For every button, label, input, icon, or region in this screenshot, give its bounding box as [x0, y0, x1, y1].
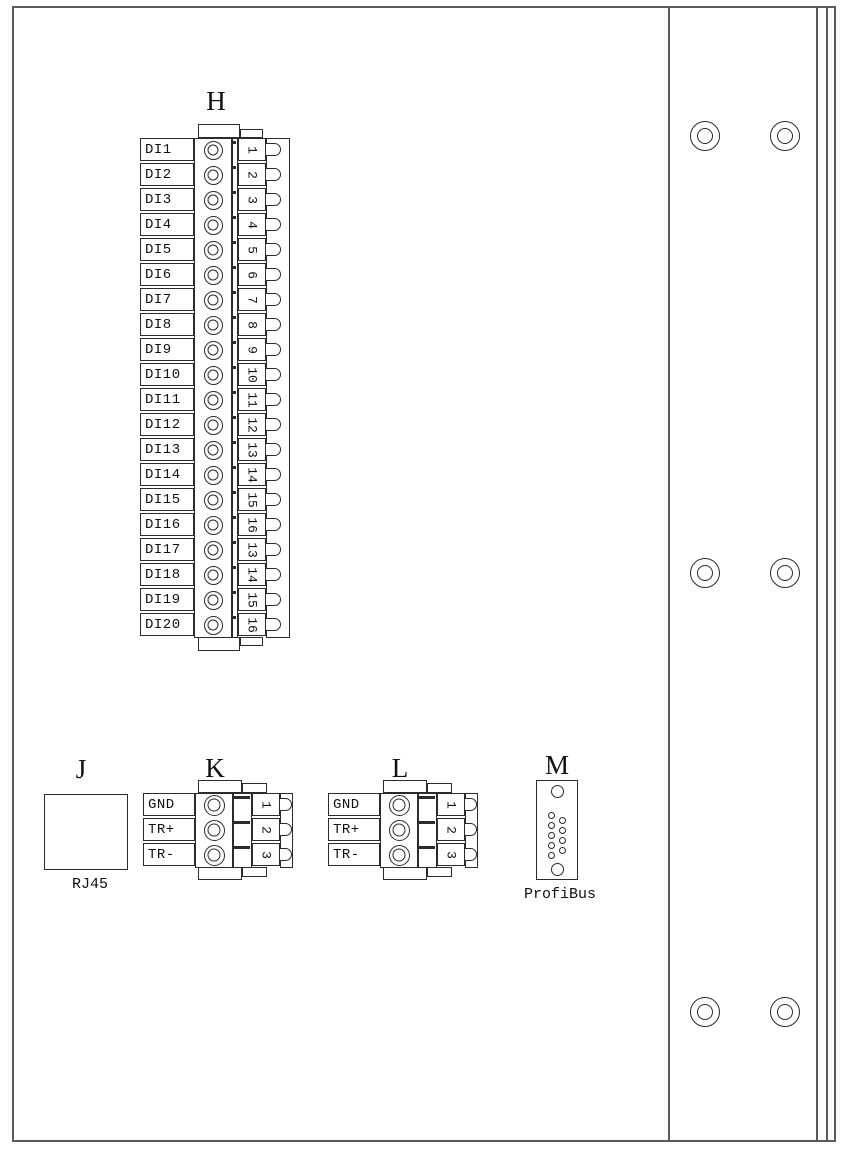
- panel-divider-line: [668, 7, 670, 1141]
- terminal-label: DI3: [141, 192, 172, 208]
- rail-tick: [233, 491, 236, 494]
- terminal-label-cell: DI4: [140, 213, 194, 236]
- terminal-label: DI2: [141, 167, 172, 183]
- terminal-label-cell: DI18: [140, 563, 194, 586]
- rj45-connector: [44, 794, 128, 870]
- pin-number-cell: 14: [238, 563, 266, 586]
- rail-tick: [233, 416, 236, 419]
- terminal-label-cell: DI16: [140, 513, 194, 536]
- screw-terminal-inner-icon: [208, 320, 219, 331]
- pin-number-cell: 5: [238, 238, 266, 261]
- terminal-label: TR-: [144, 847, 175, 863]
- wire-clip-tab: [279, 848, 292, 861]
- pin-number-cell: 2: [238, 163, 266, 186]
- db9-pin-icon: [548, 852, 555, 859]
- pin-number: 9: [245, 346, 260, 354]
- terminal-strip-rail: [233, 793, 252, 868]
- screw-terminal-inner-icon: [208, 495, 219, 506]
- terminal-label: DI19: [141, 592, 181, 608]
- pin-number-cell: 10: [238, 363, 266, 386]
- pin-number: 3: [444, 851, 459, 859]
- rail-tick: [419, 821, 435, 824]
- pin-number-cell: 9: [238, 338, 266, 361]
- rail-tick: [233, 566, 236, 569]
- terminal-label: DI1: [141, 142, 172, 158]
- terminal-label-cell: DI13: [140, 438, 194, 461]
- pin-number-cell: 7: [238, 288, 266, 311]
- pin-number: 2: [444, 826, 459, 834]
- db9-pin-icon: [548, 842, 555, 849]
- screw-terminal-inner-icon: [393, 799, 406, 812]
- screw-terminal-inner-icon: [208, 395, 219, 406]
- screw-terminal-icon: [204, 491, 223, 510]
- wire-clip-tab: [265, 243, 281, 256]
- pin-number: 14: [245, 467, 260, 483]
- pin-number: 15: [245, 492, 260, 508]
- wire-clip-tab: [265, 218, 281, 231]
- pin-number: 6: [245, 271, 260, 279]
- rail-tick: [234, 821, 250, 824]
- pin-number-cell: 3: [252, 843, 280, 866]
- rail-tick: [233, 166, 236, 169]
- pin-number: 12: [245, 417, 260, 433]
- pin-number: 2: [259, 826, 274, 834]
- wire-clip-tab: [265, 468, 281, 481]
- pin-number-cell: 11: [238, 388, 266, 411]
- pin-number-cell: 3: [437, 843, 465, 866]
- screw-terminal-inner-icon: [208, 620, 219, 631]
- db9-pin-icon: [559, 817, 566, 824]
- db9-pin-icon: [548, 832, 555, 839]
- db9-pin-icon: [559, 827, 566, 834]
- wire-clip-tab: [265, 168, 281, 181]
- screw-terminal-inner-icon: [208, 370, 219, 381]
- wire-clip-tab: [464, 823, 477, 836]
- wire-clip-tab: [265, 568, 281, 581]
- screw-terminal-icon: [204, 366, 223, 385]
- pin-number: 3: [245, 196, 260, 204]
- pin-number-cell: 2: [437, 818, 465, 841]
- rail-tick: [233, 616, 236, 619]
- terminal-label-cell: DI6: [140, 263, 194, 286]
- mounting-flange-tab: [383, 780, 427, 793]
- rail-tick: [233, 316, 236, 319]
- mount-hole-inner-icon: [777, 565, 793, 581]
- terminal-label-cell: DI15: [140, 488, 194, 511]
- screw-terminal-icon: [204, 166, 223, 185]
- panel-edge-line-1: [816, 7, 818, 1141]
- pin-number: 13: [245, 542, 260, 558]
- mounting-flange-tab: [242, 867, 267, 877]
- terminal-label-cell: TR-: [143, 843, 195, 866]
- profibus-screw-hole-icon: [551, 863, 564, 876]
- screw-terminal-inner-icon: [208, 170, 219, 181]
- rail-tick: [233, 341, 236, 344]
- screw-terminal-icon: [204, 820, 225, 841]
- mount-hole-inner-icon: [697, 565, 713, 581]
- terminal-label-cell: DI14: [140, 463, 194, 486]
- terminal-label: GND: [329, 797, 360, 813]
- pin-number: 16: [245, 617, 260, 633]
- pin-number-cell: 16: [238, 513, 266, 536]
- connector-letter-h: H: [200, 88, 232, 115]
- terminal-label: DI15: [141, 492, 181, 508]
- wire-clip-tab: [464, 798, 477, 811]
- screw-terminal-inner-icon: [208, 345, 219, 356]
- wire-clip-tab: [265, 318, 281, 331]
- mounting-flange-tab: [242, 783, 267, 793]
- pin-number: 16: [245, 517, 260, 533]
- terminal-label-cell: TR-: [328, 843, 380, 866]
- screw-terminal-icon: [204, 566, 223, 585]
- terminal-label: GND: [144, 797, 175, 813]
- terminal-label: DI5: [141, 242, 172, 258]
- wire-clip-tab: [265, 618, 281, 631]
- screw-terminal-inner-icon: [208, 595, 219, 606]
- screw-terminal-inner-icon: [208, 145, 219, 156]
- pin-number-cell: 14: [238, 463, 266, 486]
- terminal-label: TR-: [329, 847, 360, 863]
- wire-clip-tab: [279, 798, 292, 811]
- rail-tick: [233, 391, 236, 394]
- rail-tick: [233, 291, 236, 294]
- rail-tick: [233, 266, 236, 269]
- rail-tick: [233, 591, 236, 594]
- wire-clip-tab: [265, 418, 281, 431]
- pin-number: 1: [259, 801, 274, 809]
- connector-letter-k: K: [199, 755, 231, 782]
- screw-terminal-inner-icon: [208, 270, 219, 281]
- pin-number: 15: [245, 592, 260, 608]
- pin-number-cell: 12: [238, 413, 266, 436]
- wiring-diagram-canvas: H J K L M RJ45 ProfiBus DI11DI22DI33DI44…: [0, 0, 848, 1152]
- screw-terminal-icon: [204, 516, 223, 535]
- panel-edge-line-2: [826, 7, 828, 1141]
- mounting-flange-tab: [198, 780, 242, 793]
- mount-hole-inner-icon: [777, 128, 793, 144]
- pin-number-cell: 6: [238, 263, 266, 286]
- mounting-flange-tab: [240, 129, 263, 138]
- terminal-label: DI16: [141, 517, 181, 533]
- mount-hole-inner-icon: [697, 128, 713, 144]
- terminal-label-cell: DI2: [140, 163, 194, 186]
- terminal-strip-rail: [418, 793, 437, 868]
- terminal-label: DI8: [141, 317, 172, 333]
- terminal-label: TR+: [144, 822, 175, 838]
- screw-terminal-icon: [204, 316, 223, 335]
- mount-hole-icon: [770, 997, 800, 1027]
- pin-number-cell: 15: [238, 488, 266, 511]
- mount-hole-icon: [690, 997, 720, 1027]
- terminal-label-cell: DI19: [140, 588, 194, 611]
- connector-letter-j: J: [65, 756, 97, 783]
- connector-letter-m: M: [541, 752, 573, 779]
- screw-terminal-icon: [389, 795, 410, 816]
- screw-terminal-icon: [204, 141, 223, 160]
- mount-hole-icon: [690, 558, 720, 588]
- mounting-flange-tab: [427, 783, 452, 793]
- screw-terminal-column: [194, 138, 232, 638]
- terminal-label: DI12: [141, 417, 181, 433]
- wire-clip-tab: [265, 343, 281, 356]
- terminal-label: DI4: [141, 217, 172, 233]
- db9-pin-icon: [548, 812, 555, 819]
- pin-number-cell: 3: [238, 188, 266, 211]
- wire-clip-tab: [464, 848, 477, 861]
- mounting-flange-tab: [198, 867, 242, 880]
- connector-letter-l: L: [384, 755, 416, 782]
- rail-tick: [234, 796, 250, 799]
- screw-terminal-inner-icon: [208, 520, 219, 531]
- pin-number-cell: 8: [238, 313, 266, 336]
- terminal-label-cell: DI11: [140, 388, 194, 411]
- rail-tick: [233, 191, 236, 194]
- screw-terminal-inner-icon: [208, 420, 219, 431]
- terminal-label-cell: DI10: [140, 363, 194, 386]
- wire-clip-column: [266, 138, 290, 638]
- rail-tick: [233, 541, 236, 544]
- wire-clip-tab: [265, 368, 281, 381]
- pin-number-cell: 16: [238, 613, 266, 636]
- terminal-label-cell: GND: [143, 793, 195, 816]
- pin-number-cell: 15: [238, 588, 266, 611]
- terminal-label-cell: TR+: [328, 818, 380, 841]
- rail-tick: [233, 366, 236, 369]
- pin-number: 2: [245, 171, 260, 179]
- mounting-flange-tab: [240, 637, 263, 646]
- rail-tick: [233, 241, 236, 244]
- screw-terminal-inner-icon: [393, 849, 406, 862]
- screw-terminal-icon: [204, 616, 223, 635]
- rj45-caption: RJ45: [48, 876, 132, 893]
- terminal-label: DI13: [141, 442, 181, 458]
- screw-terminal-icon: [204, 466, 223, 485]
- mounting-flange-tab: [198, 124, 240, 138]
- rail-tick: [419, 796, 435, 799]
- pin-number: 1: [444, 801, 459, 809]
- terminal-label: DI20: [141, 617, 181, 633]
- rail-tick: [233, 516, 236, 519]
- screw-terminal-inner-icon: [208, 445, 219, 456]
- screw-terminal-icon: [204, 216, 223, 235]
- terminal-label-cell: DI1: [140, 138, 194, 161]
- terminal-label: DI11: [141, 392, 181, 408]
- mounting-flange-tab: [427, 867, 452, 877]
- pin-number: 10: [245, 367, 260, 383]
- db9-pin-icon: [548, 822, 555, 829]
- mounting-flange-tab: [198, 637, 240, 651]
- screw-terminal-inner-icon: [208, 195, 219, 206]
- screw-terminal-inner-icon: [208, 570, 219, 581]
- pin-number-cell: 13: [238, 438, 266, 461]
- wire-clip-tab: [265, 443, 281, 456]
- screw-terminal-inner-icon: [208, 799, 221, 812]
- pin-number: 7: [245, 296, 260, 304]
- pin-number: 4: [245, 221, 260, 229]
- terminal-label: DI6: [141, 267, 172, 283]
- wire-clip-tab: [265, 193, 281, 206]
- terminal-label: DI10: [141, 367, 181, 383]
- screw-terminal-icon: [389, 845, 410, 866]
- wire-clip-tab: [265, 493, 281, 506]
- terminal-label-cell: DI20: [140, 613, 194, 636]
- pin-number-cell: 4: [238, 213, 266, 236]
- terminal-label: DI17: [141, 542, 181, 558]
- screw-terminal-inner-icon: [208, 295, 219, 306]
- screw-terminal-inner-icon: [393, 824, 406, 837]
- wire-clip-tab: [279, 823, 292, 836]
- rail-tick: [233, 141, 236, 144]
- screw-terminal-icon: [204, 441, 223, 460]
- mount-hole-icon: [770, 558, 800, 588]
- pin-number: 8: [245, 321, 260, 329]
- rail-tick: [419, 846, 435, 849]
- pin-number: 5: [245, 246, 260, 254]
- terminal-label-cell: DI12: [140, 413, 194, 436]
- screw-terminal-icon: [204, 341, 223, 360]
- rail-tick: [233, 441, 236, 444]
- pin-number: 14: [245, 567, 260, 583]
- wire-clip-tab: [265, 293, 281, 306]
- screw-terminal-inner-icon: [208, 245, 219, 256]
- screw-terminal-inner-icon: [208, 470, 219, 481]
- profibus-caption: ProfiBus: [505, 886, 615, 903]
- terminal-label: TR+: [329, 822, 360, 838]
- pin-number: 1: [245, 146, 260, 154]
- pin-number: 11: [245, 392, 260, 408]
- screw-terminal-icon: [204, 291, 223, 310]
- terminal-label-cell: DI8: [140, 313, 194, 336]
- screw-terminal-inner-icon: [208, 220, 219, 231]
- pin-number: 3: [259, 851, 274, 859]
- terminal-label-cell: DI7: [140, 288, 194, 311]
- screw-terminal-icon: [204, 266, 223, 285]
- screw-terminal-icon: [204, 845, 225, 866]
- screw-terminal-inner-icon: [208, 824, 221, 837]
- screw-terminal-inner-icon: [208, 849, 221, 862]
- mount-hole-icon: [690, 121, 720, 151]
- wire-clip-tab: [265, 393, 281, 406]
- mounting-flange-tab: [383, 867, 427, 880]
- terminal-label-cell: DI17: [140, 538, 194, 561]
- mount-hole-inner-icon: [777, 1004, 793, 1020]
- rail-tick: [233, 216, 236, 219]
- db9-pin-icon: [559, 837, 566, 844]
- pin-number-cell: 1: [252, 793, 280, 816]
- screw-terminal-icon: [204, 191, 223, 210]
- terminal-label: DI7: [141, 292, 172, 308]
- screw-terminal-icon: [204, 416, 223, 435]
- terminal-label-cell: TR+: [143, 818, 195, 841]
- screw-terminal-icon: [204, 591, 223, 610]
- terminal-label-cell: DI9: [140, 338, 194, 361]
- profibus-screw-hole-icon: [551, 785, 564, 798]
- screw-terminal-icon: [204, 241, 223, 260]
- db9-pin-icon: [559, 847, 566, 854]
- terminal-label: DI14: [141, 467, 181, 483]
- terminal-label-cell: DI3: [140, 188, 194, 211]
- mount-hole-inner-icon: [697, 1004, 713, 1020]
- pin-number-cell: 1: [437, 793, 465, 816]
- pin-number: 13: [245, 442, 260, 458]
- wire-clip-tab: [265, 593, 281, 606]
- screw-terminal-icon: [204, 795, 225, 816]
- wire-clip-tab: [265, 543, 281, 556]
- wire-clip-tab: [265, 268, 281, 281]
- screw-terminal-icon: [389, 820, 410, 841]
- pin-number-cell: 13: [238, 538, 266, 561]
- terminal-label-cell: DI5: [140, 238, 194, 261]
- pin-number-cell: 1: [238, 138, 266, 161]
- wire-clip-tab: [265, 518, 281, 531]
- screw-terminal-icon: [204, 391, 223, 410]
- mount-hole-icon: [770, 121, 800, 151]
- terminal-label-cell: GND: [328, 793, 380, 816]
- screw-terminal-inner-icon: [208, 545, 219, 556]
- terminal-label: DI18: [141, 567, 181, 583]
- screw-terminal-icon: [204, 541, 223, 560]
- wire-clip-tab: [265, 143, 281, 156]
- rail-tick: [233, 466, 236, 469]
- rail-tick: [234, 846, 250, 849]
- pin-number-cell: 2: [252, 818, 280, 841]
- terminal-label: DI9: [141, 342, 172, 358]
